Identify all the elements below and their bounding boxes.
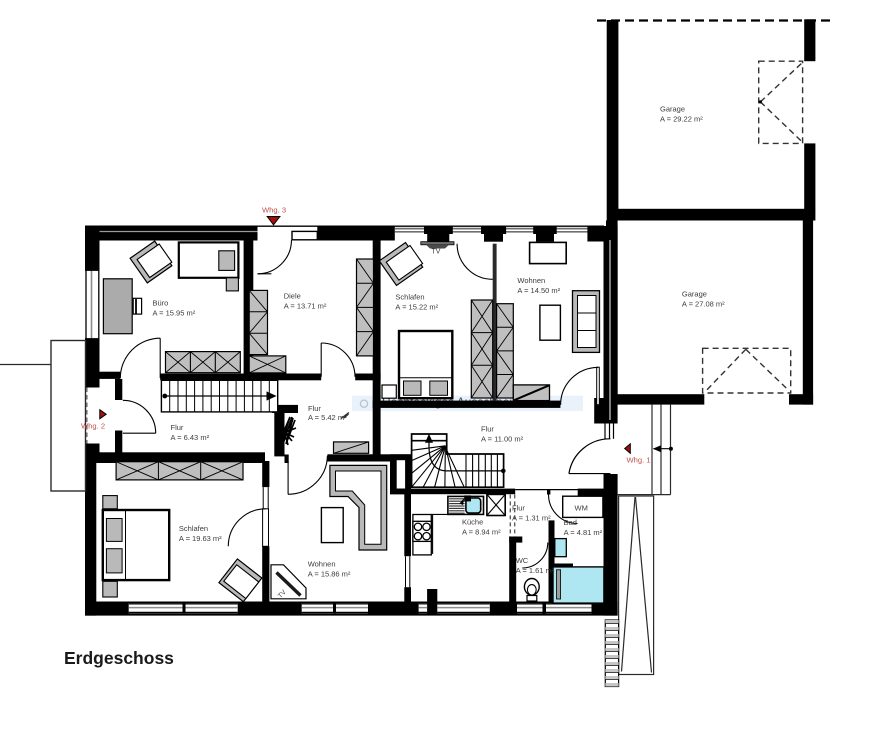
svg-text:A = 14.50 m²: A = 14.50 m² [517,286,560,295]
svg-text:Flur: Flur [512,504,525,513]
svg-text:Büro: Büro [153,299,169,308]
svg-text:Erdgeschoss: Erdgeschoss [64,648,174,668]
svg-text:A = 29.22 m²: A = 29.22 m² [660,115,703,124]
svg-text:Küche: Küche [462,518,483,527]
svg-text:A = 1.31 m²: A = 1.31 m² [512,514,551,523]
svg-text:A = 11.00 m²: A = 11.00 m² [481,435,524,444]
svg-text:Flur: Flur [308,404,321,413]
svg-text:Garage: Garage [682,290,707,299]
svg-text:A = 15.86 m²: A = 15.86 m² [308,570,351,579]
svg-text:A = 15.95 m²: A = 15.95 m² [153,309,196,318]
svg-text:Whg. 1: Whg. 1 [627,456,651,465]
svg-text:Flur: Flur [171,423,184,432]
svg-text:Whg. 3: Whg. 3 [262,206,286,215]
svg-text:Flur: Flur [481,425,494,434]
svg-text:Schlafen: Schlafen [179,524,208,533]
svg-text:A = 4.81 m²: A = 4.81 m² [564,528,603,537]
svg-text:TV: TV [432,249,441,256]
svg-text:A = 19.63 m²: A = 19.63 m² [179,534,222,543]
svg-text:A = 6.43 m²: A = 6.43 m² [171,433,210,442]
svg-text:A = 8.94 m²: A = 8.94 m² [462,528,501,537]
svg-text:A = 1.61 m²: A = 1.61 m² [516,566,555,575]
svg-text:Garage: Garage [660,105,685,114]
svg-text:Diele: Diele [284,292,301,301]
svg-text:Schlafen: Schlafen [395,293,424,302]
svg-text:Bad: Bad [564,518,577,527]
svg-text:Whg. 2: Whg. 2 [81,422,105,431]
svg-text:A = 27.08 m²: A = 27.08 m² [682,300,725,309]
svg-text:A = 15.22 m²: A = 15.22 m² [395,303,438,312]
svg-text:A = 13.71 m²: A = 13.71 m² [284,302,327,311]
svg-text:WM: WM [575,504,588,513]
svg-text:WC: WC [516,556,529,565]
svg-text:Wohnen: Wohnen [517,276,545,285]
svg-text:Wohnen: Wohnen [308,560,336,569]
